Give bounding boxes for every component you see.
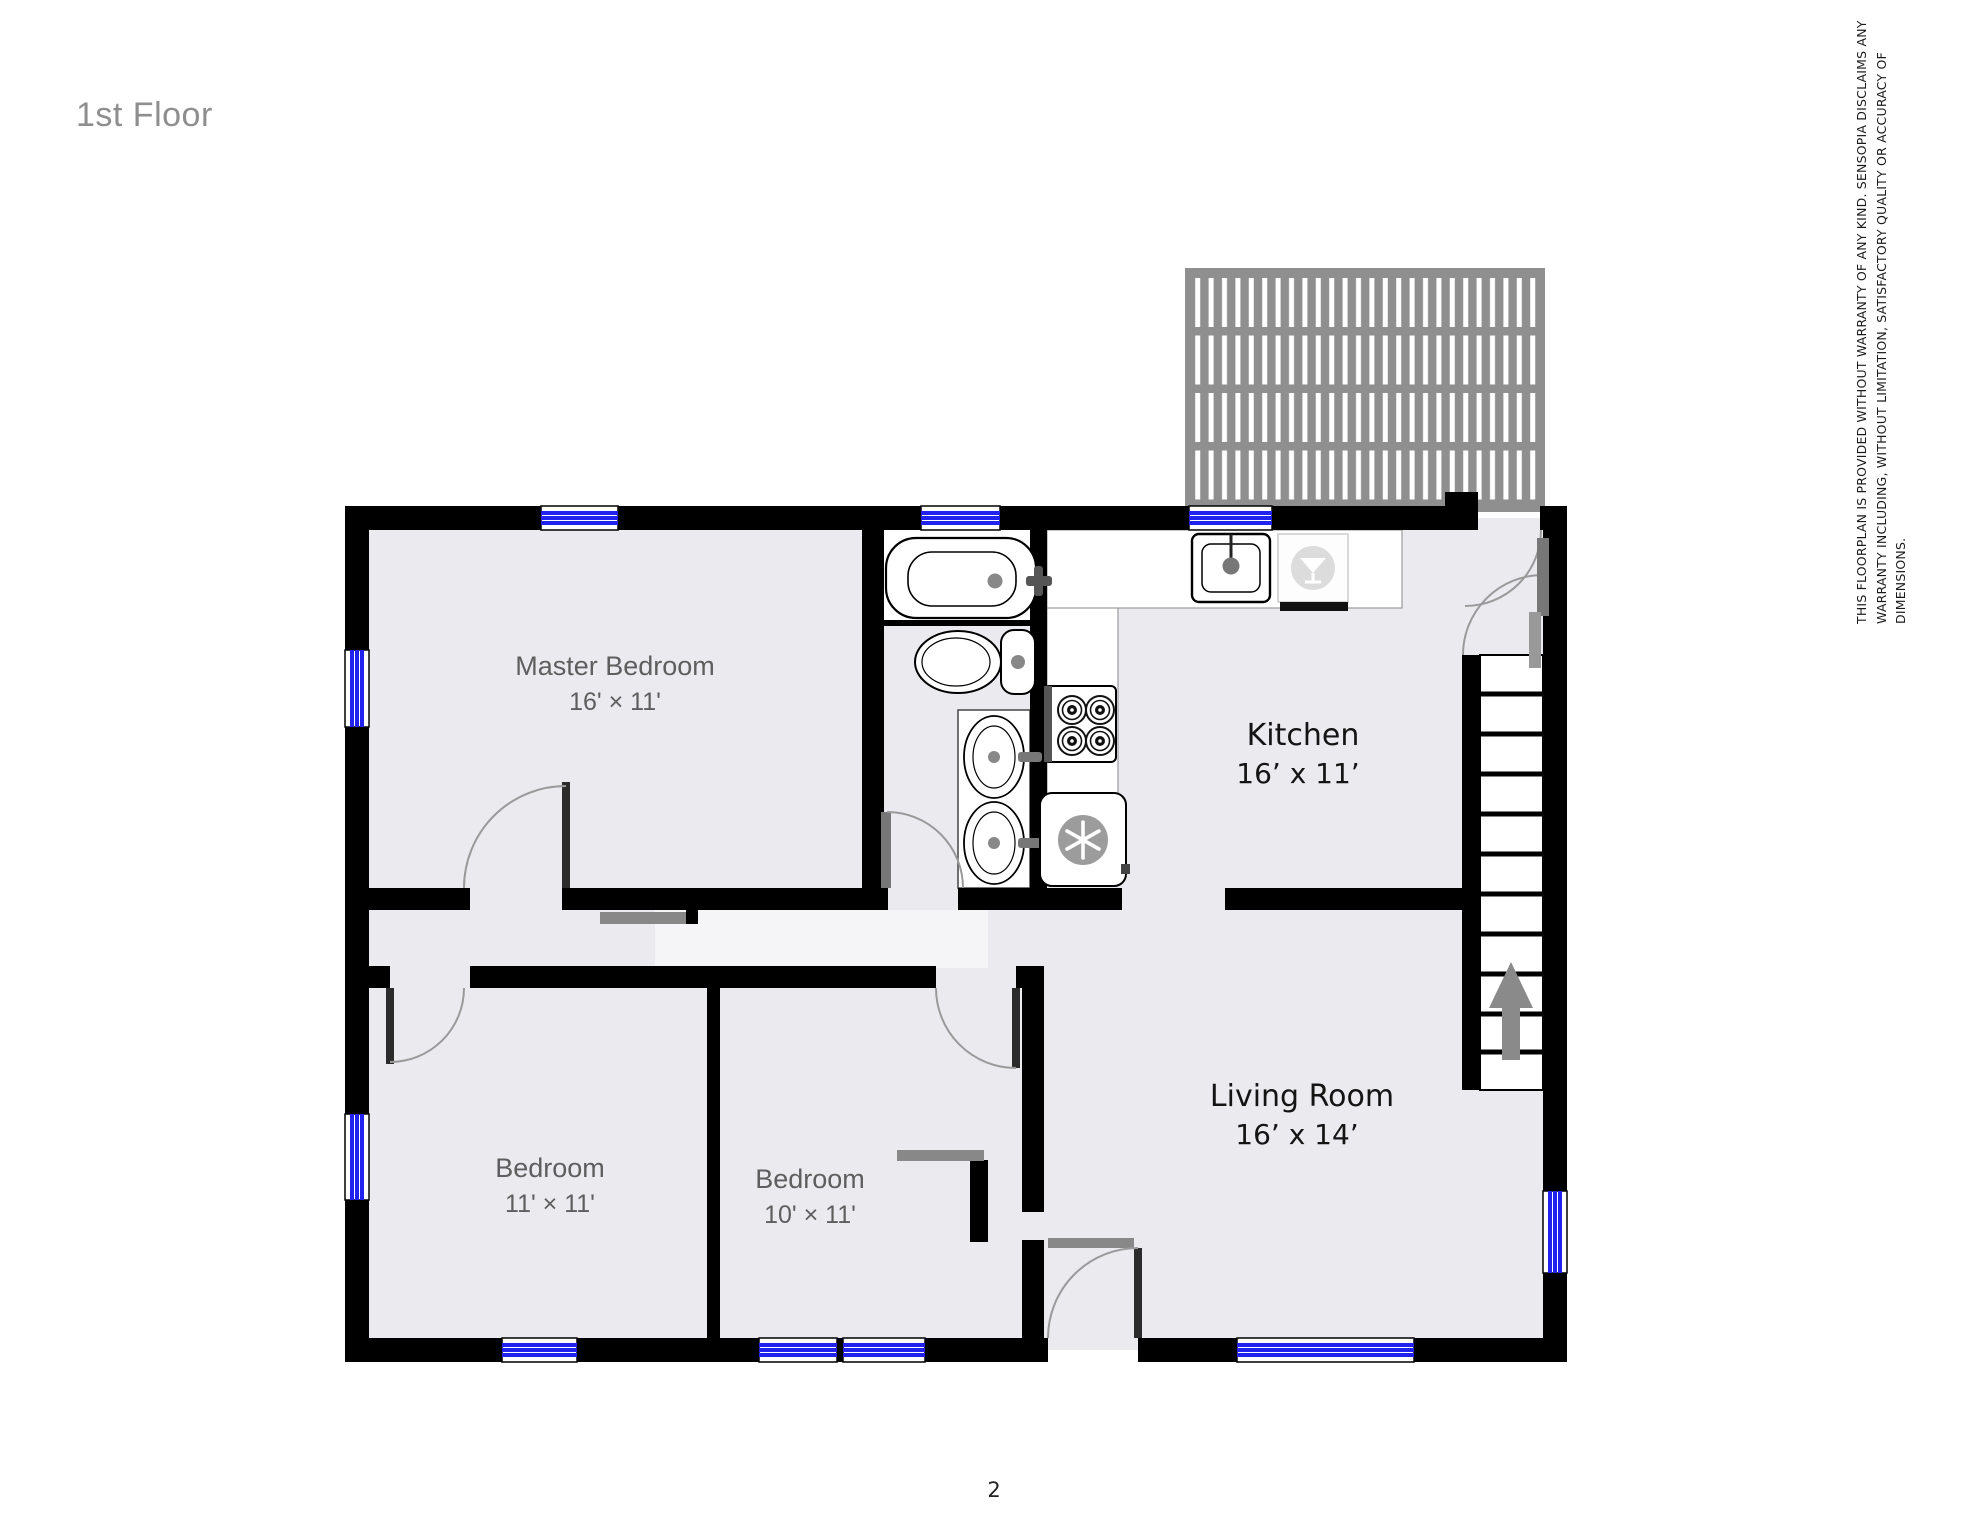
dishwasher-symbol [1278, 534, 1348, 611]
door-bedroom2-closet [897, 1150, 984, 1161]
window-bedroom2-bottom-1 [759, 1338, 837, 1362]
hallway-floor [655, 910, 988, 968]
door-hall-closet [600, 912, 686, 924]
window-bedroom2-bottom-2 [843, 1338, 925, 1362]
master-bedroom-dims: 16' × 11' [569, 688, 661, 716]
window-master-top [541, 506, 618, 530]
bedroom-middle-label: Bedroom [755, 1164, 865, 1194]
floorplan-page: { "page": { "title": "1st Floor", "numbe… [0, 0, 1988, 1536]
stairs [1480, 655, 1543, 1090]
living-room-label: Living Room [1210, 1079, 1394, 1114]
disclaimer-line-2: WARRANTY INCLUDING, WITHOUT LIMITATION, … [1872, 76, 1892, 624]
kitchen-label: Kitchen [1247, 718, 1360, 753]
master-bedroom-label: Master Bedroom [515, 651, 715, 681]
snowflake-icon [1058, 815, 1108, 865]
window-kitchen-top [1189, 506, 1272, 530]
refrigerator-symbol [1040, 793, 1130, 886]
bedroom-left-dims: 11' × 11' [505, 1190, 595, 1218]
window-living-bottom [1237, 1338, 1414, 1362]
kitchen-dims: 16’ x 11’ [1236, 757, 1359, 790]
disclaimer-line-1: THIS FLOORPLAN IS PROVIDED WITHOUT WARRA… [1852, 76, 1872, 624]
window-bath-top [921, 506, 1000, 530]
martini-glass-icon [1291, 546, 1335, 590]
bedroom-middle-dims: 10' × 11' [764, 1201, 856, 1229]
kitchen-sink-symbol [1192, 534, 1270, 602]
page-number: 2 [0, 1478, 1988, 1502]
disclaimer-text: THIS FLOORPLAN IS PROVIDED WITHOUT WARRA… [1852, 76, 1911, 624]
floorplan-svg: Master Bedroom 16' × 11' Kitchen 16’ x 1… [0, 0, 1988, 1536]
stove-symbol [1044, 686, 1116, 762]
disclaimer-line-3: DIMENSIONS. [1891, 76, 1911, 624]
window-living-right [1543, 1191, 1567, 1273]
bedroom-left-label: Bedroom [495, 1153, 605, 1183]
living-room-dims: 16’ x 14’ [1235, 1118, 1358, 1151]
deck [1185, 268, 1545, 512]
window-bedroom-left [345, 1114, 369, 1200]
window-master-left [345, 650, 369, 727]
window-bedroom1-bottom [502, 1338, 577, 1362]
toilet-symbol [915, 630, 1035, 694]
